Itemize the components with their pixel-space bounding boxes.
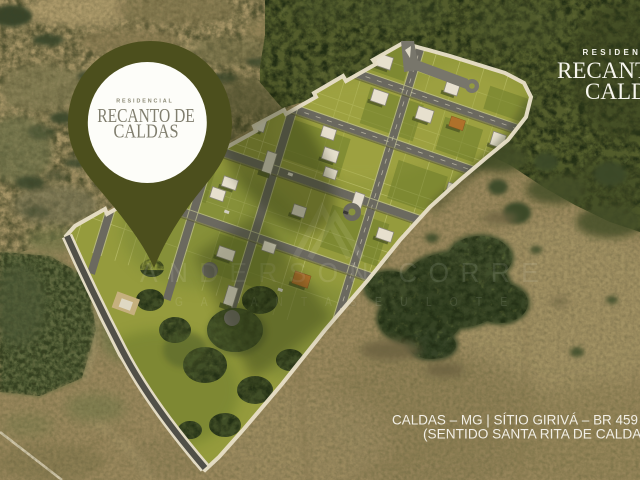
svg-text:CALDAS: CALDAS xyxy=(114,121,179,143)
svg-text:RESIDENCIAL: RESIDENCIAL xyxy=(583,48,640,57)
svg-text:CALDAS: CALDAS xyxy=(585,79,640,104)
svg-text:RESIDENCIAL: RESIDENCIAL xyxy=(116,98,173,104)
svg-text:(SENTIDO SANTA RITA DE CALDAS): (SENTIDO SANTA RITA DE CALDAS) xyxy=(423,426,640,442)
